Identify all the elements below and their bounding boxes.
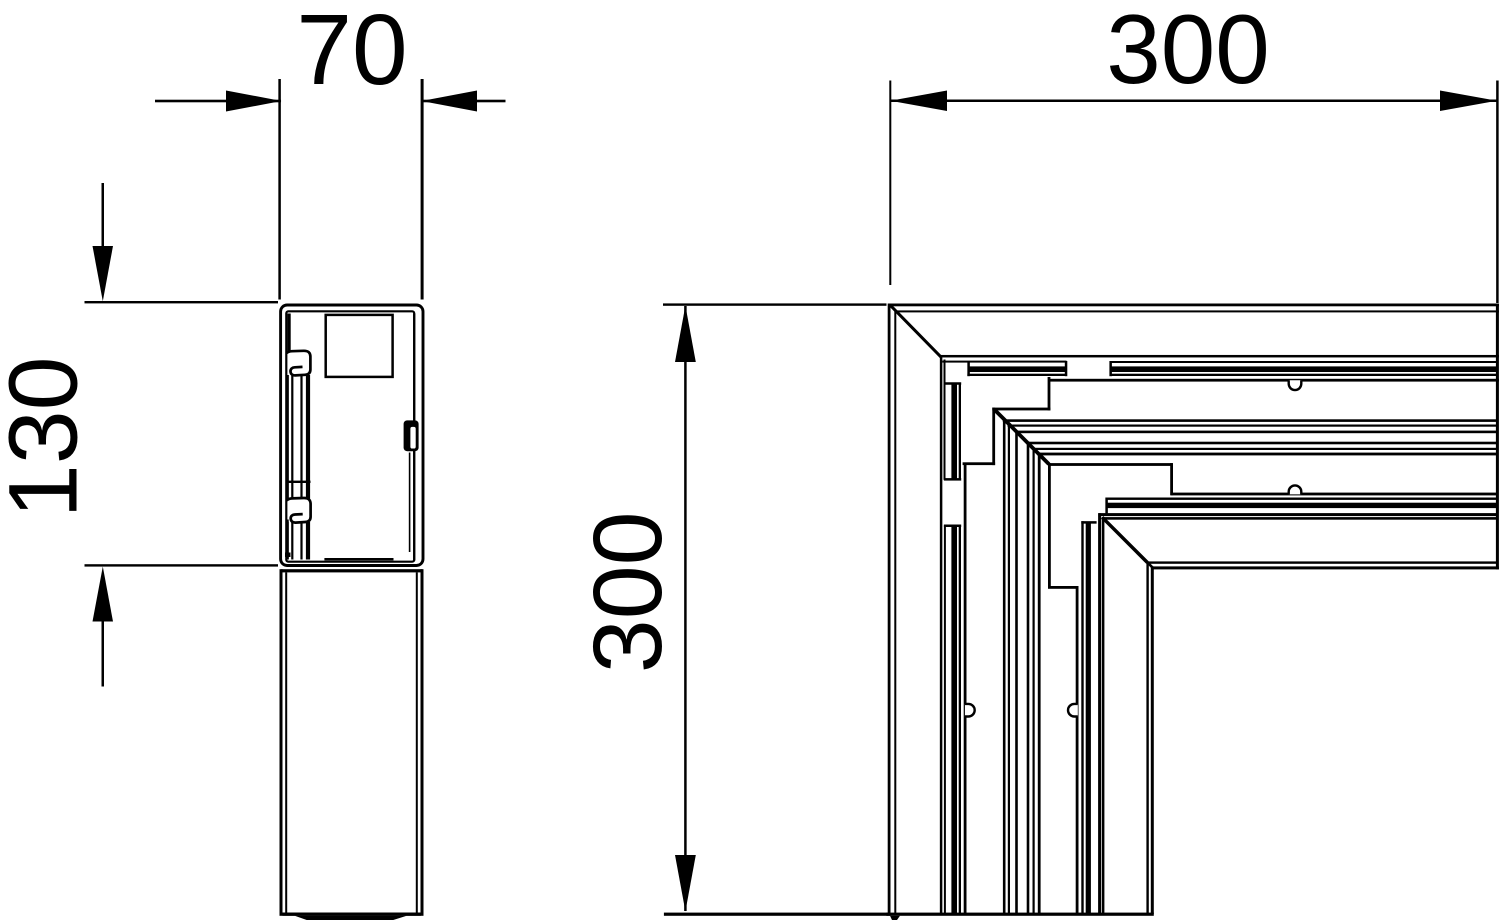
svg-text:130: 130: [0, 356, 98, 518]
svg-text:300: 300: [573, 511, 682, 673]
svg-text:300: 300: [1106, 0, 1270, 104]
svg-text:70: 70: [296, 0, 407, 106]
